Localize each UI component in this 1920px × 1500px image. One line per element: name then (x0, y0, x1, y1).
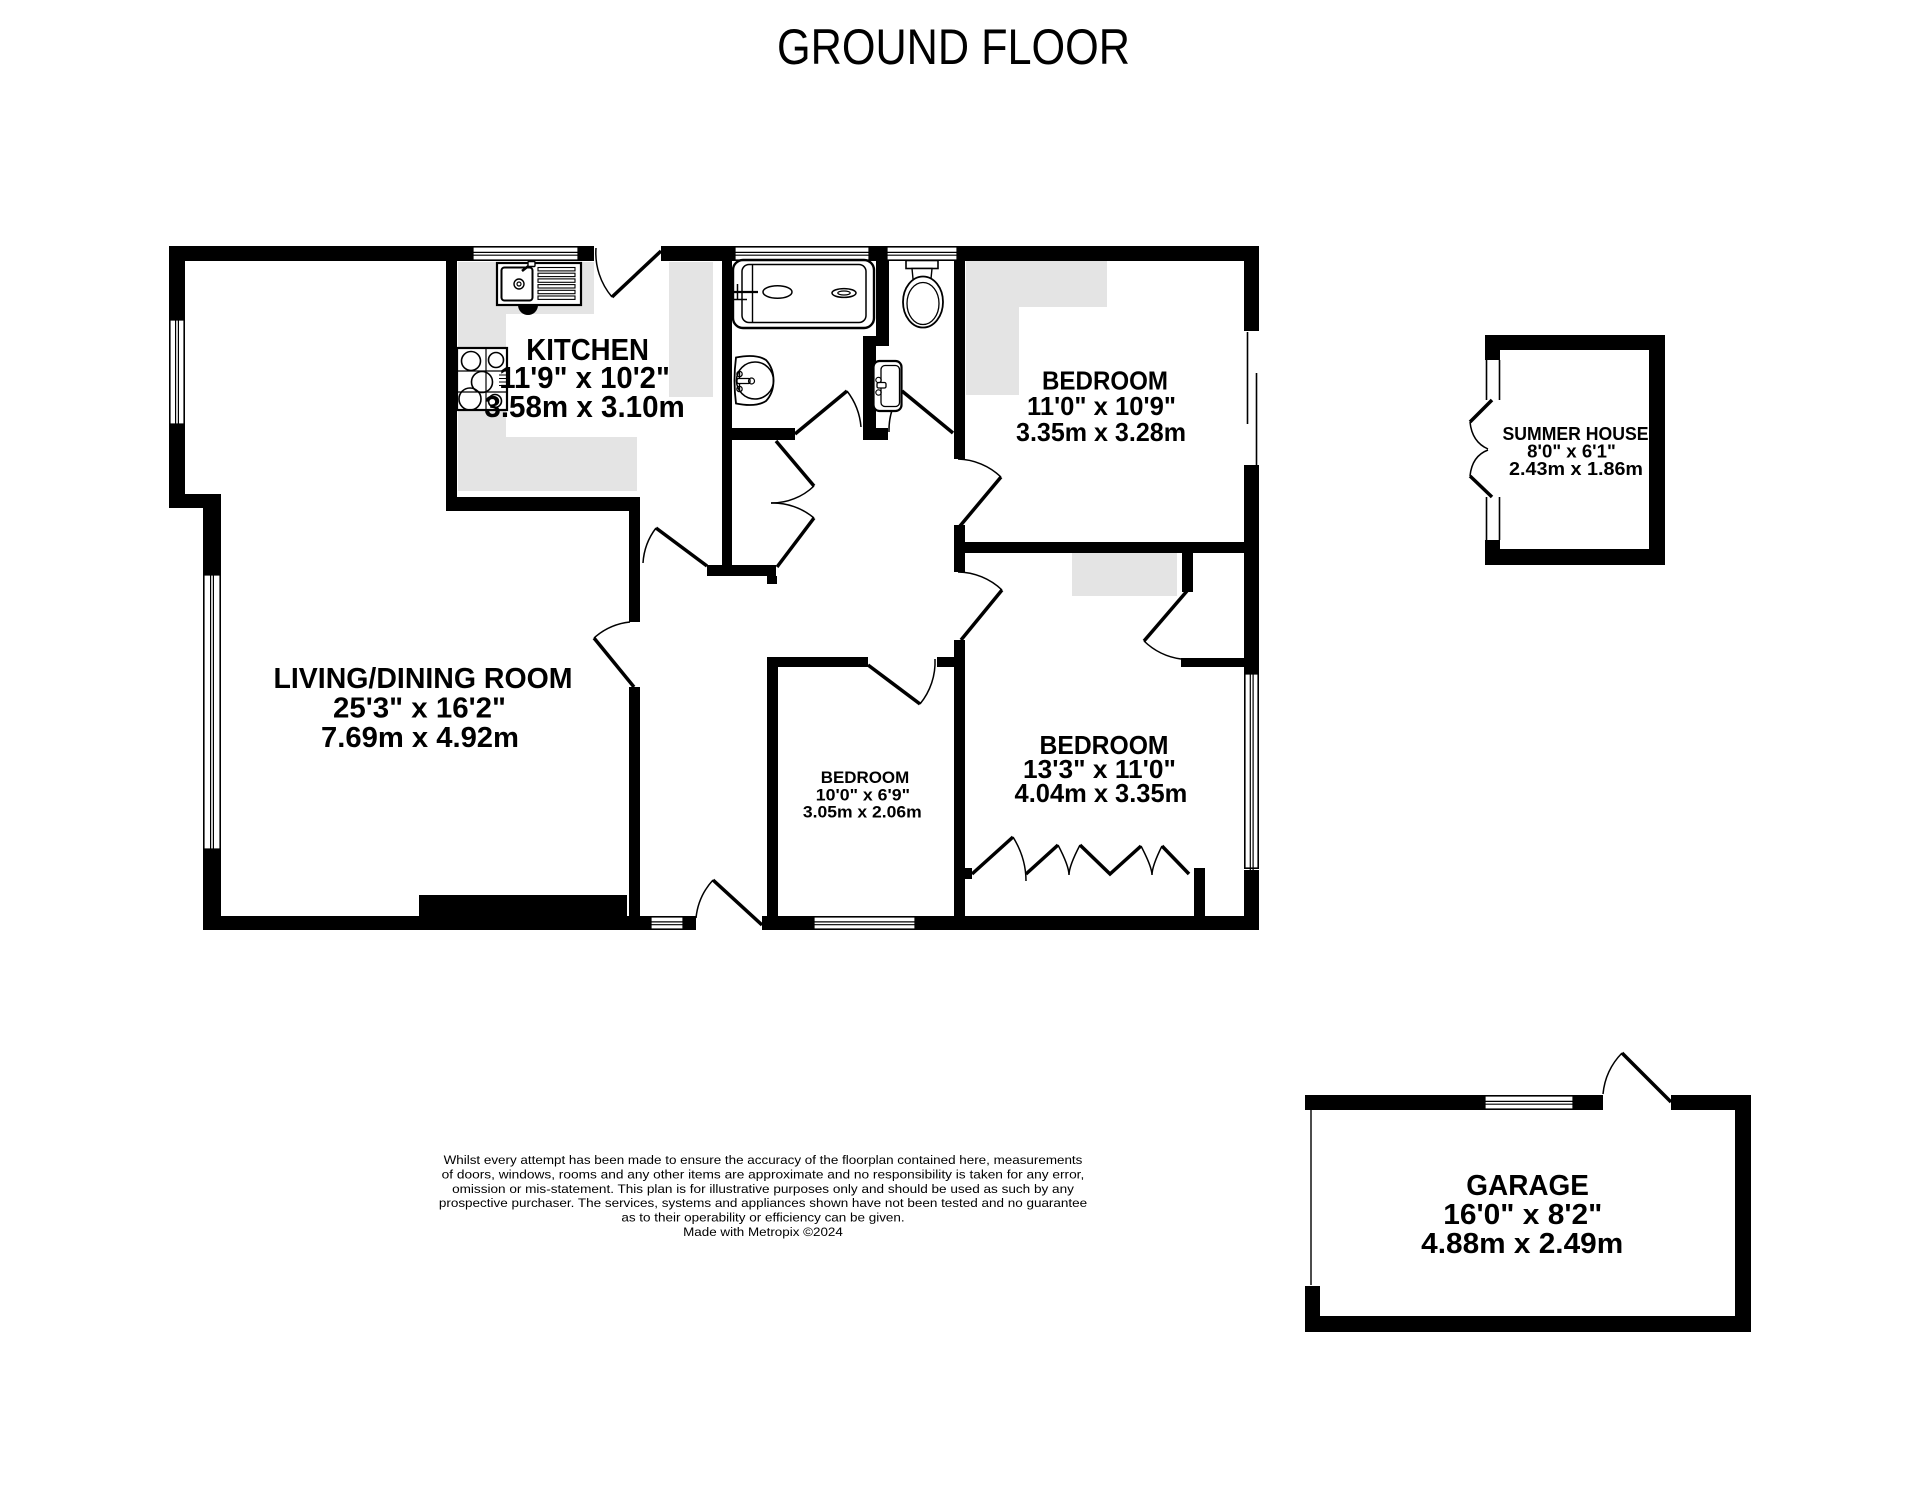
svg-text:3.35m x 3.28m: 3.35m x 3.28m (1016, 417, 1186, 447)
svg-text:4.04m x 3.35m: 4.04m x 3.35m (1015, 778, 1188, 808)
svg-text:prospective purchaser. The ser: prospective purchaser. The services, sys… (439, 1196, 1087, 1210)
svg-text:Whilst every attempt has been: Whilst every attempt has been made to en… (444, 1153, 1083, 1167)
svg-text:GARAGE: GARAGE (1466, 1169, 1589, 1201)
svg-text:7.69m x 4.92m: 7.69m x 4.92m (321, 722, 519, 754)
svg-text:of doors, windows, rooms and a: of doors, windows, rooms and any other i… (442, 1167, 1085, 1181)
svg-text:16'0" x 8'2": 16'0" x 8'2" (1443, 1198, 1602, 1230)
svg-text:25'3" x 16'2": 25'3" x 16'2" (333, 693, 506, 725)
svg-text:omission or mis-statement. Thi: omission or mis-statement. This plan is … (452, 1182, 1075, 1196)
svg-text:as to their operability or eff: as to their operability or efficiency ca… (621, 1211, 904, 1225)
svg-text:4.88m x 2.49m: 4.88m x 2.49m (1421, 1227, 1623, 1259)
svg-text:3.05m x 2.06m: 3.05m x 2.06m (803, 803, 922, 822)
svg-text:LIVING/DINING ROOM: LIVING/DINING ROOM (274, 663, 573, 695)
svg-text:2.43m x 1.86m: 2.43m x 1.86m (1509, 459, 1643, 479)
svg-text:Made with Metropix ©2024: Made with Metropix ©2024 (683, 1225, 843, 1239)
svg-text:GROUND FLOOR: GROUND FLOOR (777, 19, 1130, 75)
svg-text:3.58m x 3.10m: 3.58m x 3.10m (484, 390, 684, 424)
svg-text:BEDROOM: BEDROOM (821, 768, 909, 787)
